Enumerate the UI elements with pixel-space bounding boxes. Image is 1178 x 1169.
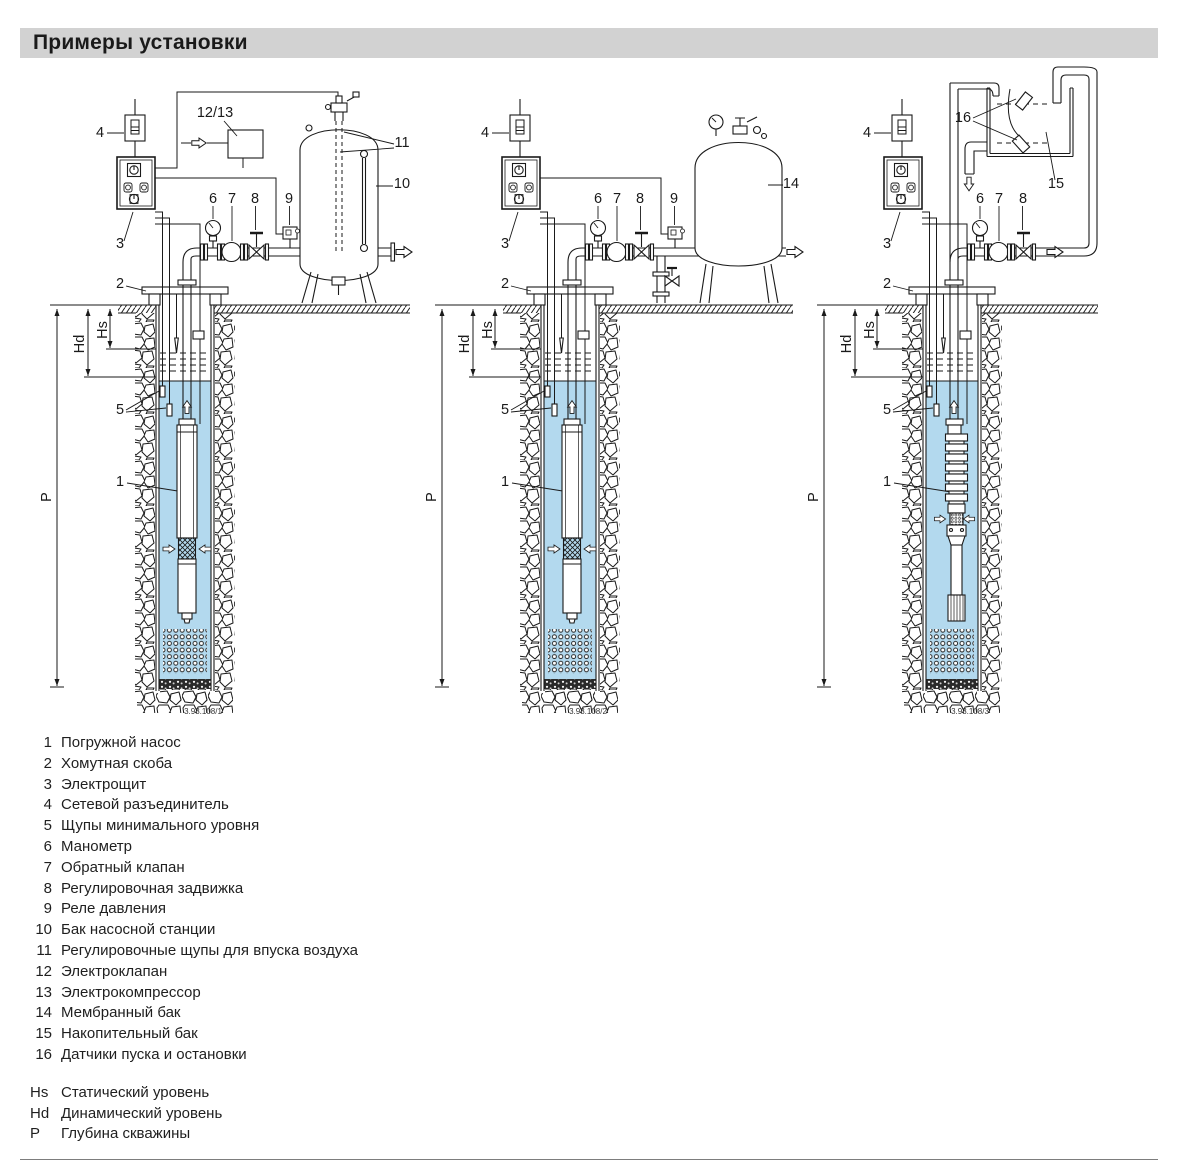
callout-2: 2 (501, 276, 509, 292)
air-inlet-arrow-icon (192, 138, 206, 148)
legend-symbol: P (30, 1124, 52, 1145)
legend-label: Регулировочная задвижка (61, 880, 243, 897)
callout-7: 7 (228, 191, 236, 207)
callout-5: 5 (116, 402, 124, 418)
tank-legs (700, 264, 778, 303)
legend-label: Электрощит (61, 776, 146, 793)
legend-item: 14Мембранный бак (30, 1003, 358, 1024)
callout-6: 6 (209, 191, 217, 207)
legend-symbol: Hs (30, 1083, 52, 1104)
legend-label: Накопительный бак (61, 1025, 198, 1042)
callout-4: 4 (863, 125, 871, 141)
legend-label: Мембранный бак (61, 1004, 180, 1021)
figure-caption: 3.93.108/1 (184, 707, 222, 716)
callout-6: 6 (976, 191, 984, 207)
callout-12-13: 12/13 (197, 105, 233, 121)
callout-16: 16 (955, 110, 971, 126)
legend-item: 4Сетевой разъединитель (30, 795, 358, 816)
callout-8: 8 (251, 191, 259, 207)
callout-7: 7 (613, 191, 621, 207)
callout-2: 2 (116, 276, 124, 292)
drain-assembly (653, 256, 679, 303)
legend-item: 1Погружной насос (30, 733, 358, 754)
legend-item: 6Манометр (30, 837, 358, 858)
legend-item: 9Реле давления (30, 899, 358, 920)
legend-label: Электроклапан (61, 963, 167, 980)
legend-item: HsСтатический уровень (30, 1083, 358, 1104)
legend-symbol: Hd (30, 1104, 52, 1125)
legend-item: 12Электроклапан (30, 962, 358, 983)
legend-number: 12 (30, 962, 52, 983)
legend-item: 11Регулировочные щупы для впуска воздуха (30, 941, 358, 962)
legend-number: 1 (30, 733, 52, 754)
callout-1: 1 (883, 474, 891, 490)
tank-top-valve (306, 92, 359, 131)
tank-top-fittings (709, 115, 767, 139)
legend-number: 8 (30, 879, 52, 900)
legend-item: 7Обратный клапан (30, 858, 358, 879)
legend-item: 5Щупы минимального уровня (30, 816, 358, 837)
legend-label: Сетевой разъединитель (61, 796, 229, 813)
tank-outlet (964, 142, 987, 191)
callout-9: 9 (285, 191, 293, 207)
legend-item: 10Бак насосной станции (30, 920, 358, 941)
label-p: P (806, 492, 822, 502)
legend-label: Датчики пуска и остановки (61, 1046, 247, 1063)
legend-label: Хомутная скоба (61, 755, 172, 772)
membrane-tank (695, 115, 782, 303)
legend-number: 7 (30, 858, 52, 879)
callout-5: 5 (883, 402, 891, 418)
callout-3: 3 (883, 236, 891, 252)
callout-1: 1 (116, 474, 124, 490)
legend-item: 16Датчики пуска и остановки (30, 1045, 358, 1066)
legend-number: 9 (30, 899, 52, 920)
label-p: P (424, 492, 440, 502)
legend-label: Регулировочные щупы для впуска воздуха (61, 942, 358, 959)
down-arrow-icon (964, 177, 973, 191)
callout-8: 8 (636, 191, 644, 207)
legend-number: 13 (30, 983, 52, 1004)
legend-number: 15 (30, 1024, 52, 1045)
callout-5: 5 (501, 402, 509, 418)
diagram-1: 4 12/13 3 6 7 8 9 11 10 2 Hs Hd P 5 1 3.… (39, 92, 412, 716)
legend-number: 14 (30, 1003, 52, 1024)
legend-number: 5 (30, 816, 52, 837)
outlet-arrow-icon (787, 247, 803, 258)
callout-3: 3 (501, 236, 509, 252)
callout-10: 10 (394, 176, 410, 192)
legend-item: 8Регулировочная задвижка (30, 879, 358, 900)
label-hs: Hs (480, 321, 496, 339)
legend-number: 2 (30, 754, 52, 775)
legend-number: 10 (30, 920, 52, 941)
callout-2: 2 (883, 276, 891, 292)
legend-item: 3Электрощит (30, 775, 358, 796)
legend: 1Погружной насос 2Хомутная скоба 3Электр… (30, 733, 358, 1145)
callout-14: 14 (783, 176, 799, 192)
legend-item: PГлубина скважины (30, 1124, 358, 1145)
callout-15: 15 (1048, 176, 1064, 192)
legend-label: Обратный клапан (61, 859, 185, 876)
legend-number: 16 (30, 1045, 52, 1066)
legend-item: 2Хомутная скоба (30, 754, 358, 775)
callout-6: 6 (594, 191, 602, 207)
pressure-tank (300, 92, 412, 303)
legend-label: Бак насосной станции (61, 921, 215, 938)
compressor-box (181, 130, 263, 168)
callout-1: 1 (501, 474, 509, 490)
callout-8: 8 (1019, 191, 1027, 207)
legend-item: 13Электрокомпрессор (30, 983, 358, 1004)
label-hd: Hd (839, 335, 855, 354)
callout-4: 4 (481, 125, 489, 141)
label-hs: Hs (95, 321, 111, 339)
legend-item: 15Накопительный бак (30, 1024, 358, 1045)
label-hd: Hd (457, 335, 473, 354)
label-hd: Hd (72, 335, 88, 354)
figure-caption: 3.93.108/3 (951, 707, 989, 716)
level-definitions: HsСтатический уровень HdДинамический уро… (30, 1083, 358, 1145)
feed-pipe-loop (1053, 67, 1097, 256)
legend-label: Реле давления (61, 900, 166, 917)
legend-number: 11 (30, 941, 52, 962)
installation-diagrams: 4 12/13 3 6 7 8 9 11 10 2 Hs Hd P 5 1 3.… (0, 0, 1178, 745)
footer-rule (20, 1159, 1158, 1160)
figure-caption: 3.93.108/2 (569, 707, 607, 716)
callout-3: 3 (116, 236, 124, 252)
legend-label: Погружной насос (61, 734, 181, 751)
legend-number: 3 (30, 775, 52, 796)
legend-label: Электрокомпрессор (61, 984, 201, 1001)
label-p: P (39, 492, 55, 502)
callout-4: 4 (96, 125, 104, 141)
outlet-arrow-icon (396, 247, 412, 258)
legend-label: Статический уровень (61, 1084, 209, 1101)
legend-label: Динамический уровень (61, 1105, 222, 1122)
legend-item: HdДинамический уровень (30, 1104, 358, 1125)
legend-number: 6 (30, 837, 52, 858)
diagram-2: 4 3 6 7 8 9 14 2 Hs Hd P 5 1 3.93.108/2 (424, 99, 803, 716)
callout-7: 7 (995, 191, 1003, 207)
legend-label: Глубина скважины (61, 1125, 190, 1142)
callout-9: 9 (670, 191, 678, 207)
legend-label: Щупы минимального уровня (61, 817, 259, 834)
callout-11: 11 (394, 135, 409, 151)
label-hs: Hs (862, 321, 878, 339)
diagram-3: 4 3 16 15 6 7 8 2 Hs Hd P 5 1 3.93.108/3 (806, 67, 1098, 716)
legend-label: Манометр (61, 838, 132, 855)
legend-number: 4 (30, 795, 52, 816)
